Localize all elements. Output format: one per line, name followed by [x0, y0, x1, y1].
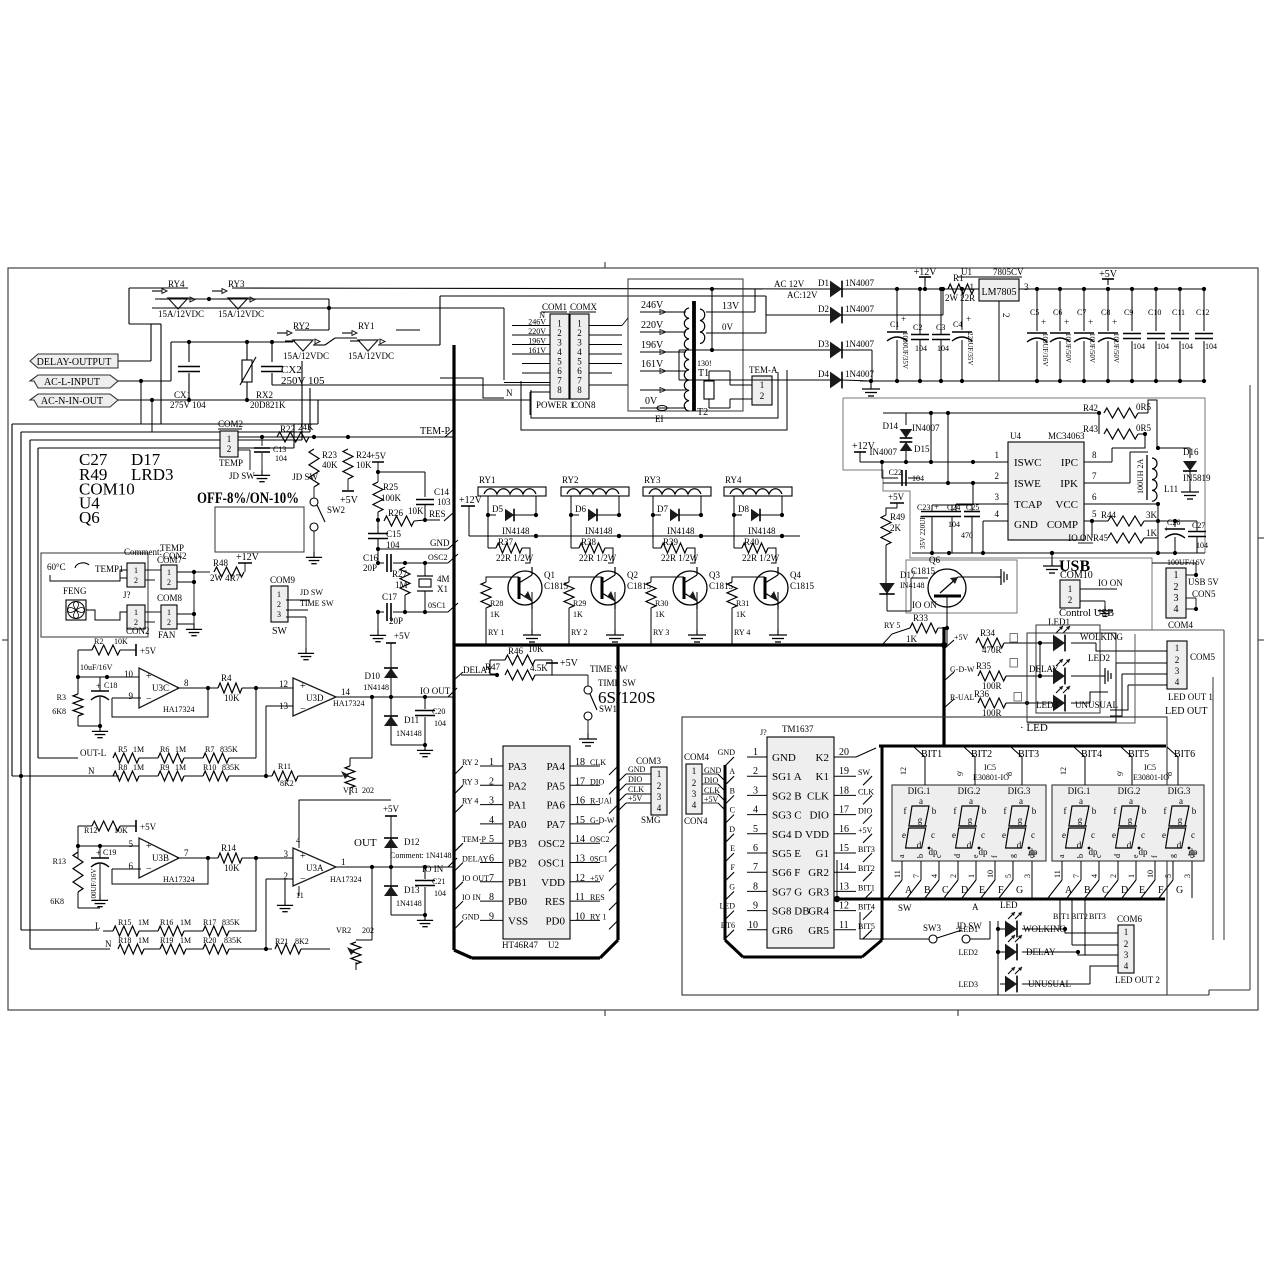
svg-text:22R 1/2W: 22R 1/2W: [661, 553, 699, 563]
svg-text:22R 1/2W: 22R 1/2W: [742, 553, 780, 563]
svg-text:R13: R13: [53, 857, 66, 866]
svg-text:SW1: SW1: [599, 704, 617, 714]
svg-text:VDD: VDD: [541, 877, 565, 889]
svg-text:OFF-8%/ON-10%: OFF-8%/ON-10%: [197, 490, 299, 507]
svg-text:Q1: Q1: [544, 570, 555, 580]
svg-text:BIT5: BIT5: [858, 922, 875, 931]
svg-text:U2: U2: [548, 940, 559, 950]
svg-text:BIT3: BIT3: [1089, 912, 1106, 921]
svg-text:2: 2: [1175, 655, 1180, 665]
svg-text:−: −: [300, 704, 306, 715]
svg-text:2: 2: [1124, 939, 1129, 949]
svg-text:C6: C6: [1053, 308, 1062, 317]
svg-text:B: B: [730, 786, 735, 795]
svg-text:LED1: LED1: [958, 925, 978, 934]
svg-text:20: 20: [839, 747, 849, 758]
svg-text:2: 2: [227, 444, 232, 454]
svg-text:1N4007: 1N4007: [845, 278, 874, 288]
svg-text:20P: 20P: [389, 616, 403, 626]
svg-text:3: 3: [557, 338, 562, 348]
svg-text:MC34063: MC34063: [1048, 431, 1085, 441]
svg-text:−: −: [146, 864, 152, 875]
svg-text:104: 104: [434, 719, 446, 728]
svg-text:−: −: [300, 874, 306, 885]
svg-text:19: 19: [839, 766, 849, 777]
svg-text:b: b: [932, 806, 937, 816]
svg-text:1K: 1K: [736, 610, 746, 619]
svg-text:18: 18: [839, 785, 849, 796]
svg-text:+: +: [1041, 317, 1046, 327]
svg-text:R8: R8: [118, 763, 127, 772]
svg-text:100UF/16V: 100UF/16V: [1167, 558, 1205, 567]
svg-text:15A/12VDC: 15A/12VDC: [283, 351, 329, 361]
svg-text:C2: C2: [913, 323, 922, 332]
svg-text:COMP: COMP: [1047, 519, 1078, 531]
svg-text:+: +: [966, 314, 971, 324]
svg-text:7: 7: [557, 376, 562, 386]
svg-text:RY 1: RY 1: [590, 912, 606, 921]
svg-text:COM4: COM4: [1168, 620, 1194, 630]
svg-text:104: 104: [1181, 342, 1193, 351]
svg-text:2: 2: [1068, 595, 1073, 605]
svg-text:104: 104: [434, 889, 446, 898]
svg-text:RY 5: RY 5: [884, 621, 900, 630]
svg-text:0R5: 0R5: [1136, 423, 1152, 433]
svg-text:130!: 130!: [697, 359, 712, 368]
svg-text:X1: X1: [437, 584, 448, 594]
svg-text:15A/12VDC: 15A/12VDC: [348, 351, 394, 361]
svg-text:104: 104: [912, 474, 924, 483]
svg-text:IN4148: IN4148: [900, 581, 924, 590]
svg-text:10: 10: [748, 920, 758, 931]
svg-text:N: N: [506, 388, 513, 398]
svg-text:2: 2: [1109, 874, 1118, 878]
svg-text:AC-L-INPUT: AC-L-INPUT: [44, 377, 100, 388]
svg-text:PA3: PA3: [508, 761, 527, 773]
svg-text:BIT2: BIT2: [971, 749, 992, 760]
svg-text:R30: R30: [655, 599, 668, 608]
svg-text:+5V: +5V: [140, 646, 157, 656]
svg-text:202: 202: [362, 786, 374, 795]
svg-text:17: 17: [839, 805, 849, 816]
svg-text:N: N: [105, 939, 112, 949]
svg-text:TEM-P: TEM-P: [462, 835, 487, 844]
svg-text:RES: RES: [590, 893, 605, 902]
svg-text:POWER 1: POWER 1: [536, 400, 574, 410]
svg-text:1M: 1M: [180, 918, 191, 927]
svg-text:GR3: GR3: [808, 886, 829, 898]
svg-text:1M: 1M: [175, 745, 186, 754]
svg-text:35V 220UF: 35V 220UF: [919, 516, 927, 549]
svg-text:3K: 3K: [1146, 510, 1158, 520]
svg-text:C1815: C1815: [790, 581, 815, 591]
svg-text:HA17324: HA17324: [330, 875, 362, 884]
svg-text:LED3: LED3: [1036, 700, 1058, 710]
svg-text:e: e: [902, 830, 906, 840]
svg-text:C23: C23: [917, 503, 930, 512]
svg-text:D2: D2: [818, 304, 829, 314]
svg-text:LED: LED: [719, 902, 735, 911]
svg-text:835K: 835K: [222, 918, 240, 927]
svg-text:1: 1: [692, 766, 697, 776]
svg-text:11: 11: [839, 920, 849, 931]
svg-text:C11: C11: [1172, 308, 1185, 317]
svg-text:GR2: GR2: [808, 867, 829, 879]
svg-text:10UF/50V: 10UF/50V: [1088, 333, 1096, 363]
svg-text:e: e: [971, 854, 980, 858]
svg-text:e: e: [1162, 830, 1166, 840]
svg-text:BT6: BT6: [721, 921, 735, 930]
svg-text:0SC1: 0SC1: [428, 601, 446, 610]
svg-text:R35: R35: [976, 661, 992, 671]
svg-text:c: c: [934, 854, 943, 858]
svg-text:2: 2: [167, 578, 171, 587]
svg-text:+5V: +5V: [140, 822, 157, 832]
svg-text:+: +: [1112, 317, 1117, 327]
svg-text:G: G: [1016, 885, 1023, 896]
svg-text:10: 10: [986, 870, 995, 878]
svg-text:R22: R22: [280, 424, 295, 434]
svg-text:8K2: 8K2: [295, 937, 309, 946]
svg-text:g: g: [918, 815, 923, 825]
svg-text:g: g: [1178, 815, 1183, 825]
svg-text:+: +: [96, 848, 101, 858]
svg-text:1: 1: [134, 566, 138, 575]
svg-text:+12V: +12V: [459, 495, 483, 506]
svg-text:104: 104: [948, 520, 960, 529]
svg-text:3: 3: [1183, 874, 1192, 878]
svg-text:R15: R15: [118, 918, 131, 927]
svg-text:U4: U4: [1010, 431, 1021, 441]
svg-text:LED: LED: [1000, 900, 1018, 910]
svg-text:f: f: [990, 855, 999, 858]
svg-text:R-UAL: R-UAL: [950, 693, 975, 702]
svg-text:DIG.2: DIG.2: [1118, 786, 1141, 796]
svg-text:g: g: [1018, 815, 1023, 825]
svg-text:C24: C24: [947, 503, 960, 512]
svg-text:+: +: [1088, 317, 1093, 327]
svg-text:R44: R44: [1101, 510, 1117, 520]
svg-text:BIT4: BIT4: [858, 903, 875, 912]
svg-text:PA0: PA0: [508, 819, 527, 831]
svg-text:RES: RES: [429, 509, 446, 519]
svg-text:HA17324: HA17324: [163, 875, 195, 884]
svg-text:JD SW: JD SW: [292, 472, 318, 482]
svg-text:+: +: [1064, 317, 1069, 327]
svg-text:14: 14: [341, 687, 351, 697]
svg-text:e: e: [1002, 830, 1006, 840]
svg-text:4: 4: [995, 509, 1000, 519]
svg-text:3: 3: [1175, 666, 1180, 676]
svg-text:1K: 1K: [490, 610, 500, 619]
svg-text:G: G: [1176, 885, 1183, 896]
svg-text:6: 6: [577, 366, 582, 376]
svg-text:TIME SW: TIME SW: [590, 664, 628, 674]
svg-text:E: E: [730, 844, 735, 853]
svg-text:104: 104: [915, 344, 927, 353]
svg-text:R31: R31: [736, 599, 749, 608]
svg-text:BIT4: BIT4: [1081, 749, 1102, 760]
svg-text:9: 9: [753, 901, 758, 912]
svg-text:1: 1: [341, 857, 346, 867]
svg-text:2W 22R: 2W 22R: [945, 293, 975, 303]
svg-text:PB0: PB0: [508, 896, 527, 908]
svg-text:+5V: +5V: [858, 826, 873, 835]
svg-text:4: 4: [557, 347, 562, 357]
svg-text:104: 104: [937, 344, 949, 353]
svg-text:1: 1: [557, 319, 562, 329]
svg-text:R28: R28: [490, 599, 503, 608]
svg-text:A: A: [1065, 885, 1073, 896]
svg-text:10K: 10K: [356, 460, 372, 470]
svg-text:3: 3: [284, 849, 289, 859]
svg-text:6: 6: [1092, 492, 1097, 502]
svg-text:2: 2: [657, 781, 662, 791]
svg-text:U3C: U3C: [152, 683, 169, 693]
svg-text:f: f: [1114, 806, 1117, 816]
svg-text:OSC2: OSC2: [428, 553, 448, 562]
svg-text:0V: 0V: [722, 322, 734, 332]
svg-text:CON4: CON4: [684, 816, 708, 826]
svg-text:1: 1: [167, 568, 171, 577]
svg-text:R5: R5: [118, 745, 127, 754]
svg-text:12: 12: [839, 901, 849, 912]
svg-text:9': 9': [1116, 770, 1125, 776]
svg-text:12: 12: [899, 767, 908, 775]
svg-text:8: 8: [1092, 450, 1097, 460]
svg-text:C16: C16: [363, 553, 379, 563]
svg-text:C19: C19: [103, 848, 116, 857]
svg-text:0SC1: 0SC1: [590, 855, 608, 864]
svg-text:VCC: VCC: [1055, 499, 1078, 511]
svg-text:GR4: GR4: [808, 906, 829, 918]
svg-text:IO ON: IO ON: [912, 600, 937, 610]
svg-text:+5V: +5V: [1099, 269, 1118, 280]
svg-text:SW: SW: [272, 626, 288, 637]
svg-text:1: 1: [1127, 874, 1136, 878]
svg-text:FAN: FAN: [158, 630, 176, 640]
svg-text:C21: C21: [432, 877, 445, 886]
svg-text:3: 3: [577, 338, 582, 348]
svg-text:R29: R29: [573, 599, 586, 608]
svg-text:C7: C7: [1077, 308, 1086, 317]
svg-text:f: f: [954, 806, 957, 816]
svg-text:100UF/16V: 100UF/16V: [1041, 333, 1049, 366]
svg-text:+5V: +5V: [560, 658, 579, 669]
svg-text:7: 7: [912, 874, 921, 878]
svg-text:6K8: 6K8: [50, 897, 64, 906]
svg-text:d: d: [917, 840, 922, 850]
svg-text:CLK: CLK: [858, 787, 874, 796]
svg-text:AC:12V: AC:12V: [787, 290, 818, 300]
svg-text:SMG: SMG: [641, 815, 661, 825]
svg-text:BIT1: BIT1: [921, 749, 942, 760]
svg-text:470: 470: [961, 531, 973, 540]
svg-text:5: 5: [753, 824, 758, 835]
svg-text:835K: 835K: [222, 763, 240, 772]
svg-text:104: 104: [1133, 342, 1145, 351]
svg-text:7: 7: [753, 862, 758, 873]
svg-text:15A/12VDC: 15A/12VDC: [158, 309, 204, 319]
svg-text:BIT5: BIT5: [1128, 749, 1149, 760]
svg-text:DIO: DIO: [858, 807, 872, 816]
svg-text:GND: GND: [430, 538, 450, 548]
svg-text:C25: C25: [966, 503, 979, 512]
svg-text:COM8: COM8: [157, 593, 183, 603]
svg-text:R49: R49: [890, 512, 906, 522]
svg-text:Q3: Q3: [709, 570, 720, 580]
svg-text:CX1: CX1: [174, 390, 191, 400]
svg-text:7: 7: [1092, 471, 1097, 481]
svg-text:R36: R36: [974, 689, 990, 699]
svg-text:BIT3: BIT3: [858, 845, 875, 854]
svg-text:RY 4: RY 4: [734, 628, 750, 637]
svg-text:RY1: RY1: [358, 321, 375, 331]
svg-text:D10: D10: [365, 671, 381, 681]
svg-text:3: 3: [1024, 282, 1029, 292]
svg-text:A: A: [729, 767, 735, 776]
svg-text:275V 104: 275V 104: [170, 400, 206, 410]
svg-text:SG4 D: SG4 D: [772, 829, 802, 841]
svg-text:d: d: [1017, 840, 1022, 850]
svg-text:DELAY: DELAY: [462, 855, 489, 864]
svg-text:+: +: [934, 502, 939, 512]
svg-text:F: F: [731, 863, 736, 872]
svg-text:ISWC: ISWC: [1014, 457, 1042, 469]
svg-text:4: 4: [1175, 677, 1180, 687]
svg-text:835K: 835K: [224, 936, 242, 945]
svg-text:IN4148: IN4148: [667, 526, 695, 536]
svg-text:e: e: [1112, 830, 1116, 840]
svg-text:a: a: [1179, 796, 1183, 806]
svg-text:+12V: +12V: [852, 441, 876, 452]
svg-text:LED2: LED2: [958, 948, 978, 957]
svg-text:1M: 1M: [138, 936, 149, 945]
svg-text:12: 12: [1059, 767, 1068, 775]
svg-text:202: 202: [362, 926, 374, 935]
svg-text:5: 5: [129, 839, 134, 849]
svg-text:100K: 100K: [381, 493, 402, 503]
svg-text:a: a: [919, 796, 923, 806]
svg-text:1: 1: [1068, 584, 1073, 594]
svg-text:4: 4: [577, 347, 582, 357]
svg-text:3: 3: [692, 789, 697, 799]
svg-text:100UH 2A: 100UH 2A: [1136, 458, 1145, 494]
svg-text:D3: D3: [818, 339, 829, 349]
svg-text:7: 7: [184, 848, 189, 858]
svg-text:IN4148: IN4148: [585, 526, 613, 536]
svg-text:3: 3: [1023, 874, 1032, 878]
svg-text:8: 8: [184, 678, 189, 688]
svg-text:dp: dp: [1027, 850, 1036, 858]
svg-text:R34: R34: [980, 628, 996, 638]
svg-text:LED2: LED2: [1088, 653, 1110, 663]
svg-text:IN5819: IN5819: [1183, 473, 1211, 483]
svg-text:R11: R11: [278, 762, 291, 771]
svg-text:Q4: Q4: [790, 570, 801, 580]
svg-text:g: g: [1168, 854, 1177, 858]
svg-text:DIO: DIO: [628, 775, 642, 784]
svg-text:6K8: 6K8: [52, 707, 66, 716]
svg-text:10UF/50V: 10UF/50V: [1064, 333, 1072, 363]
svg-text:+: +: [300, 681, 306, 692]
svg-text:T2: T2: [697, 407, 708, 418]
svg-text:C15: C15: [386, 529, 402, 539]
svg-text:470R: 470R: [982, 645, 1002, 655]
svg-text:4: 4: [930, 874, 939, 878]
svg-text:+: +: [96, 681, 101, 691]
svg-text:E30801-IO: E30801-IO: [973, 773, 1009, 782]
svg-text:PB1: PB1: [508, 877, 527, 889]
svg-text:1N4148: 1N4148: [363, 683, 389, 692]
svg-text:F: F: [1158, 885, 1164, 896]
svg-text:10UF/50V: 10UF/50V: [1112, 333, 1120, 363]
svg-text:1M: 1M: [395, 580, 408, 590]
svg-text:DELAY-OUTPUT: DELAY-OUTPUT: [37, 357, 112, 368]
svg-text:GR6: GR6: [772, 925, 793, 937]
svg-text:11: 11: [893, 870, 902, 878]
svg-text:PB3: PB3: [508, 838, 527, 850]
svg-text:PA6: PA6: [546, 800, 565, 812]
svg-text:IN4007: IN4007: [912, 423, 940, 433]
svg-text:C1815: C1815: [544, 581, 569, 591]
svg-text:BIT2: BIT2: [858, 864, 875, 873]
svg-text:a: a: [897, 854, 906, 858]
svg-text:2: 2: [995, 471, 1000, 481]
svg-text:4: 4: [1174, 604, 1179, 615]
svg-text:K2: K2: [816, 752, 829, 764]
svg-text:3: 3: [277, 610, 281, 619]
svg-text:g: g: [1008, 854, 1017, 858]
svg-text:5: 5: [1004, 874, 1013, 878]
svg-text:R43: R43: [1083, 424, 1099, 434]
svg-text:DIO: DIO: [590, 777, 604, 786]
svg-text:RY 2: RY 2: [571, 628, 587, 637]
svg-text:1N4007: 1N4007: [845, 339, 874, 349]
svg-text:5: 5: [577, 357, 582, 367]
svg-text:b: b: [1092, 806, 1097, 816]
svg-text:2: 2: [167, 618, 171, 627]
svg-text:b: b: [916, 854, 925, 858]
svg-text:TCAP: TCAP: [1014, 499, 1042, 511]
svg-text:1K: 1K: [906, 634, 918, 644]
svg-text:BIT6: BIT6: [1174, 749, 1195, 760]
svg-text:Q6: Q6: [929, 555, 940, 565]
svg-text:40K: 40K: [322, 460, 338, 470]
svg-text:G-D-W: G-D-W: [590, 816, 615, 825]
svg-text:COM9: COM9: [270, 575, 296, 585]
svg-text:a: a: [1019, 796, 1023, 806]
svg-text:2K: 2K: [890, 523, 902, 533]
svg-text:J?: J?: [123, 590, 131, 600]
svg-text:4M: 4M: [437, 574, 450, 584]
svg-text:Q2: Q2: [627, 570, 638, 580]
svg-text:1: 1: [995, 450, 1000, 460]
svg-text:PA1: PA1: [508, 800, 527, 812]
svg-text:g: g: [1078, 815, 1083, 825]
svg-text:R3: R3: [57, 693, 66, 702]
svg-text:g: g: [968, 815, 973, 825]
svg-text:RY 4: RY 4: [462, 797, 478, 806]
svg-text:8: 8: [557, 385, 562, 395]
svg-text:15: 15: [839, 843, 849, 854]
svg-text:D6: D6: [575, 504, 586, 514]
svg-text:R33: R33: [913, 613, 929, 623]
svg-text:U3B: U3B: [152, 853, 169, 863]
svg-text:1: 1: [1124, 927, 1129, 937]
svg-text:1M: 1M: [180, 936, 191, 945]
svg-text:1K: 1K: [655, 610, 665, 619]
